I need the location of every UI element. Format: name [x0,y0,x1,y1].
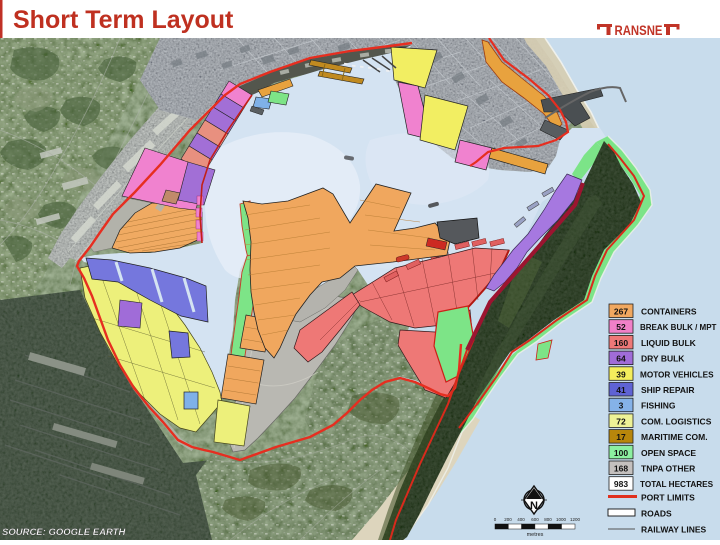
svg-text:SHIP REPAIR: SHIP REPAIR [641,385,695,395]
svg-text:TOTAL HECTARES: TOTAL HECTARES [640,480,714,489]
svg-text:41: 41 [616,385,626,395]
svg-text:metres: metres [527,532,544,538]
svg-text:DRY BULK: DRY BULK [641,354,685,364]
svg-text:800: 800 [544,517,552,522]
svg-text:1000: 1000 [556,517,567,522]
svg-text:Short Term Layout: Short Term Layout [13,6,234,34]
svg-text:N: N [530,500,538,512]
svg-text:OPEN SPACE: OPEN SPACE [641,448,696,458]
svg-text:LIQUID BULK: LIQUID BULK [641,338,697,348]
svg-text:160: 160 [614,338,628,348]
svg-text:72: 72 [616,416,626,426]
svg-text:100: 100 [614,448,628,458]
svg-text:17: 17 [616,432,626,442]
svg-text:3: 3 [619,401,624,411]
svg-text:TNPA OTHER: TNPA OTHER [641,464,695,474]
svg-text:52: 52 [616,322,626,332]
svg-text:600: 600 [531,517,539,522]
svg-text:SOURCE: GOOGLE EARTH: SOURCE: GOOGLE EARTH [2,527,126,538]
svg-text:1200: 1200 [570,517,581,522]
svg-text:FISHING: FISHING [641,401,676,411]
svg-text:MOTOR VEHICLES: MOTOR VEHICLES [640,370,714,379]
svg-text:983: 983 [614,479,628,489]
svg-text:200: 200 [504,517,512,522]
svg-text:RANSNE: RANSNE [615,22,663,38]
svg-text:MARITIME COM.: MARITIME COM. [641,432,708,442]
svg-text:39: 39 [616,369,626,379]
svg-text:PORT LIMITS: PORT LIMITS [641,493,695,503]
svg-text:COM. LOGISTICS: COM. LOGISTICS [641,416,712,426]
svg-text:RAILWAY LINES: RAILWAY LINES [641,525,707,535]
svg-text:64: 64 [616,354,626,364]
svg-text:CONTAINERS: CONTAINERS [641,307,697,317]
svg-text:ROADS: ROADS [641,509,672,519]
svg-text:400: 400 [517,517,525,522]
svg-text:267: 267 [614,307,628,317]
svg-text:168: 168 [614,464,628,474]
svg-text:BREAK BULK / MPT: BREAK BULK / MPT [640,323,717,332]
